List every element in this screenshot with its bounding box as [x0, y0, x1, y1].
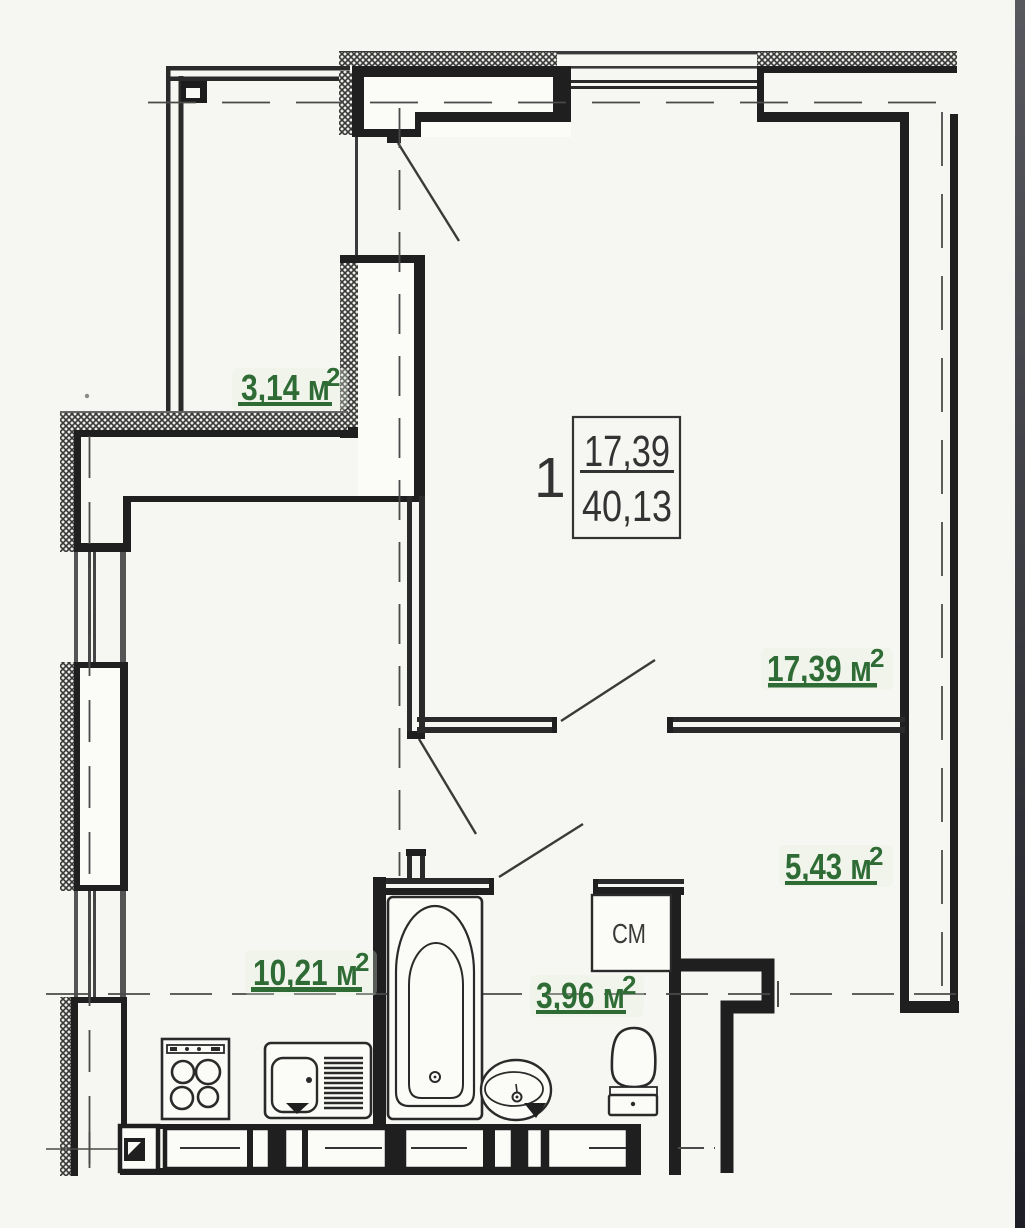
svg-text:2: 2	[870, 643, 884, 673]
svg-text:2: 2	[326, 362, 340, 392]
svg-text:17,39 м: 17,39 м	[767, 648, 872, 689]
svg-text:2: 2	[355, 947, 369, 977]
svg-text:2: 2	[869, 841, 883, 871]
svg-text:40,13: 40,13	[582, 482, 672, 531]
svg-text:10,21 м: 10,21 м	[253, 952, 358, 993]
svg-text:СМ: СМ	[612, 918, 646, 949]
svg-text:3,96 м: 3,96 м	[536, 975, 625, 1016]
svg-text:1: 1	[534, 446, 566, 510]
svg-text:2: 2	[622, 970, 636, 1000]
svg-text:3,14 м: 3,14 м	[241, 367, 330, 408]
svg-text:5,43 м: 5,43 м	[785, 846, 872, 887]
svg-text:17,39: 17,39	[584, 427, 670, 476]
